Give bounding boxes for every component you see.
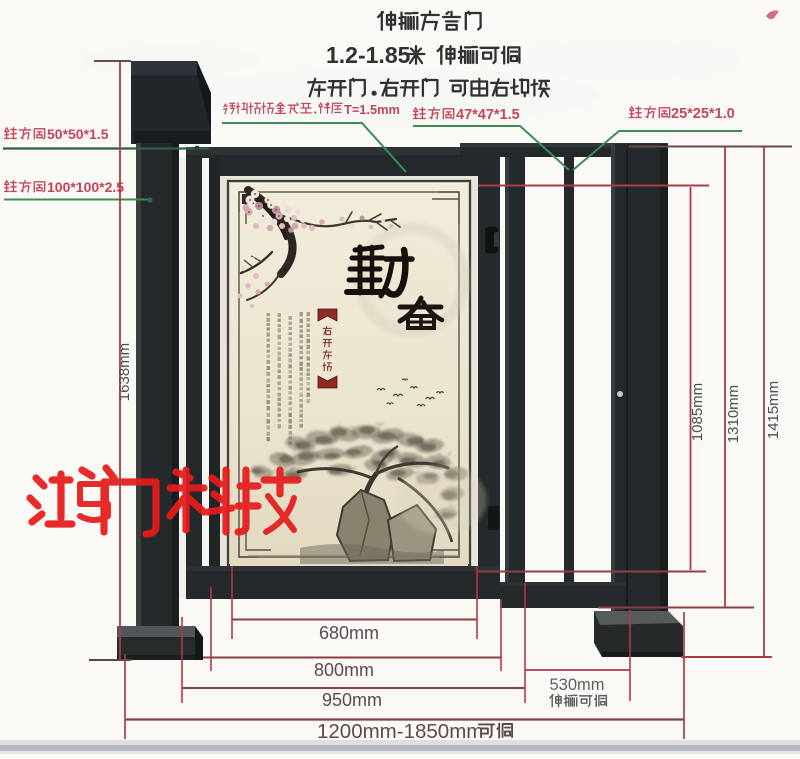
svg-text:1415mm: 1415mm: [765, 381, 782, 439]
svg-text:800mm: 800mm: [314, 660, 374, 680]
svg-text:1085mm: 1085mm: [689, 383, 706, 441]
svg-text:1.2-1.85: 1.2-1.85: [326, 42, 411, 68]
svg-text:1310mm: 1310mm: [725, 385, 742, 443]
svg-text:100*100*2.5: 100*100*2.5: [47, 179, 124, 195]
svg-text:680mm: 680mm: [319, 623, 379, 643]
svg-text:1200mm-1850mm: 1200mm-1850mm: [317, 720, 483, 743]
svg-text:47*47*1.5: 47*47*1.5: [456, 107, 520, 123]
svg-text:530mm: 530mm: [549, 676, 604, 694]
svg-text:50*50*1.5: 50*50*1.5: [47, 126, 109, 142]
svg-text:25*25*1.0: 25*25*1.0: [671, 106, 735, 122]
svg-text:1638mm: 1638mm: [116, 343, 133, 401]
svg-text:950mm: 950mm: [322, 690, 382, 710]
svg-text:T=1.5mm: T=1.5mm: [344, 102, 400, 117]
